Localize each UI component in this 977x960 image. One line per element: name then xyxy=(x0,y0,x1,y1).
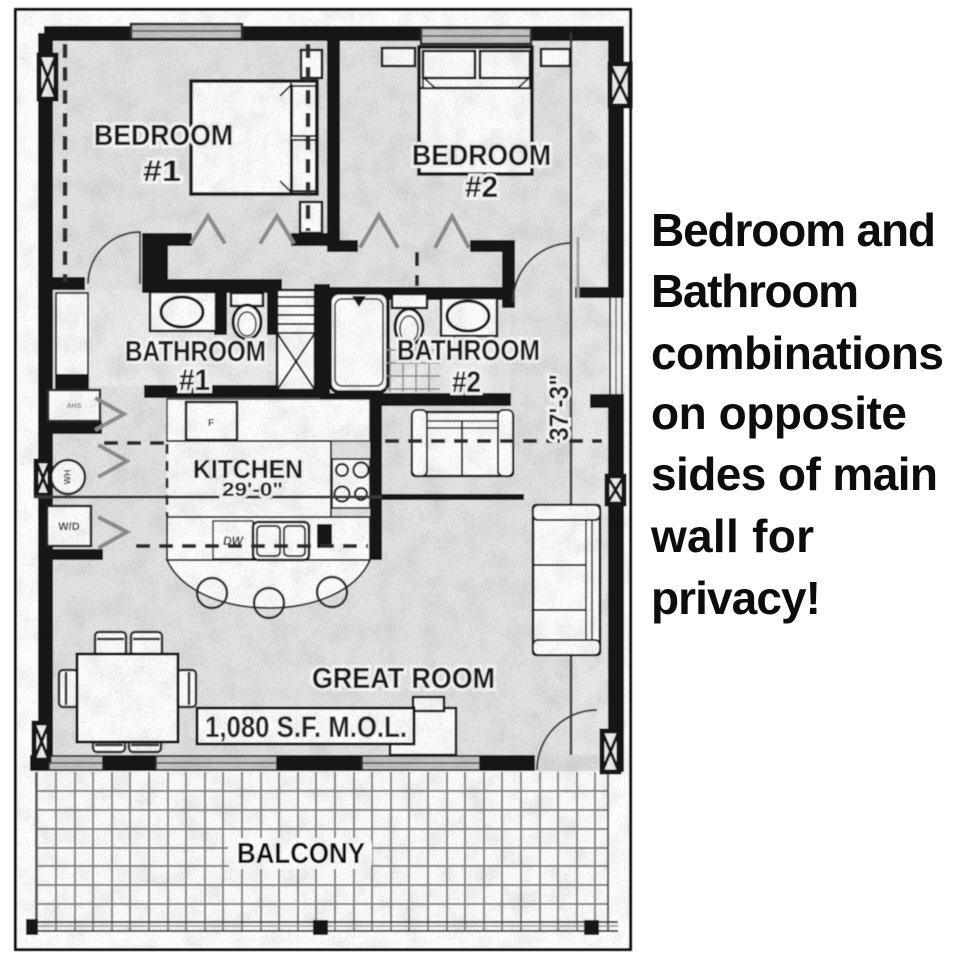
svg-text:sides of main: sides of main xyxy=(651,448,938,500)
svg-text:privacy!: privacy! xyxy=(651,572,821,624)
svg-text:combinations: combinations xyxy=(651,327,944,379)
svg-text:Bedroom and: Bedroom and xyxy=(651,204,936,256)
svg-text:wall for: wall for xyxy=(650,510,814,562)
svg-text:on opposite: on opposite xyxy=(651,387,907,439)
svg-text:Bathroom: Bathroom xyxy=(651,265,859,317)
